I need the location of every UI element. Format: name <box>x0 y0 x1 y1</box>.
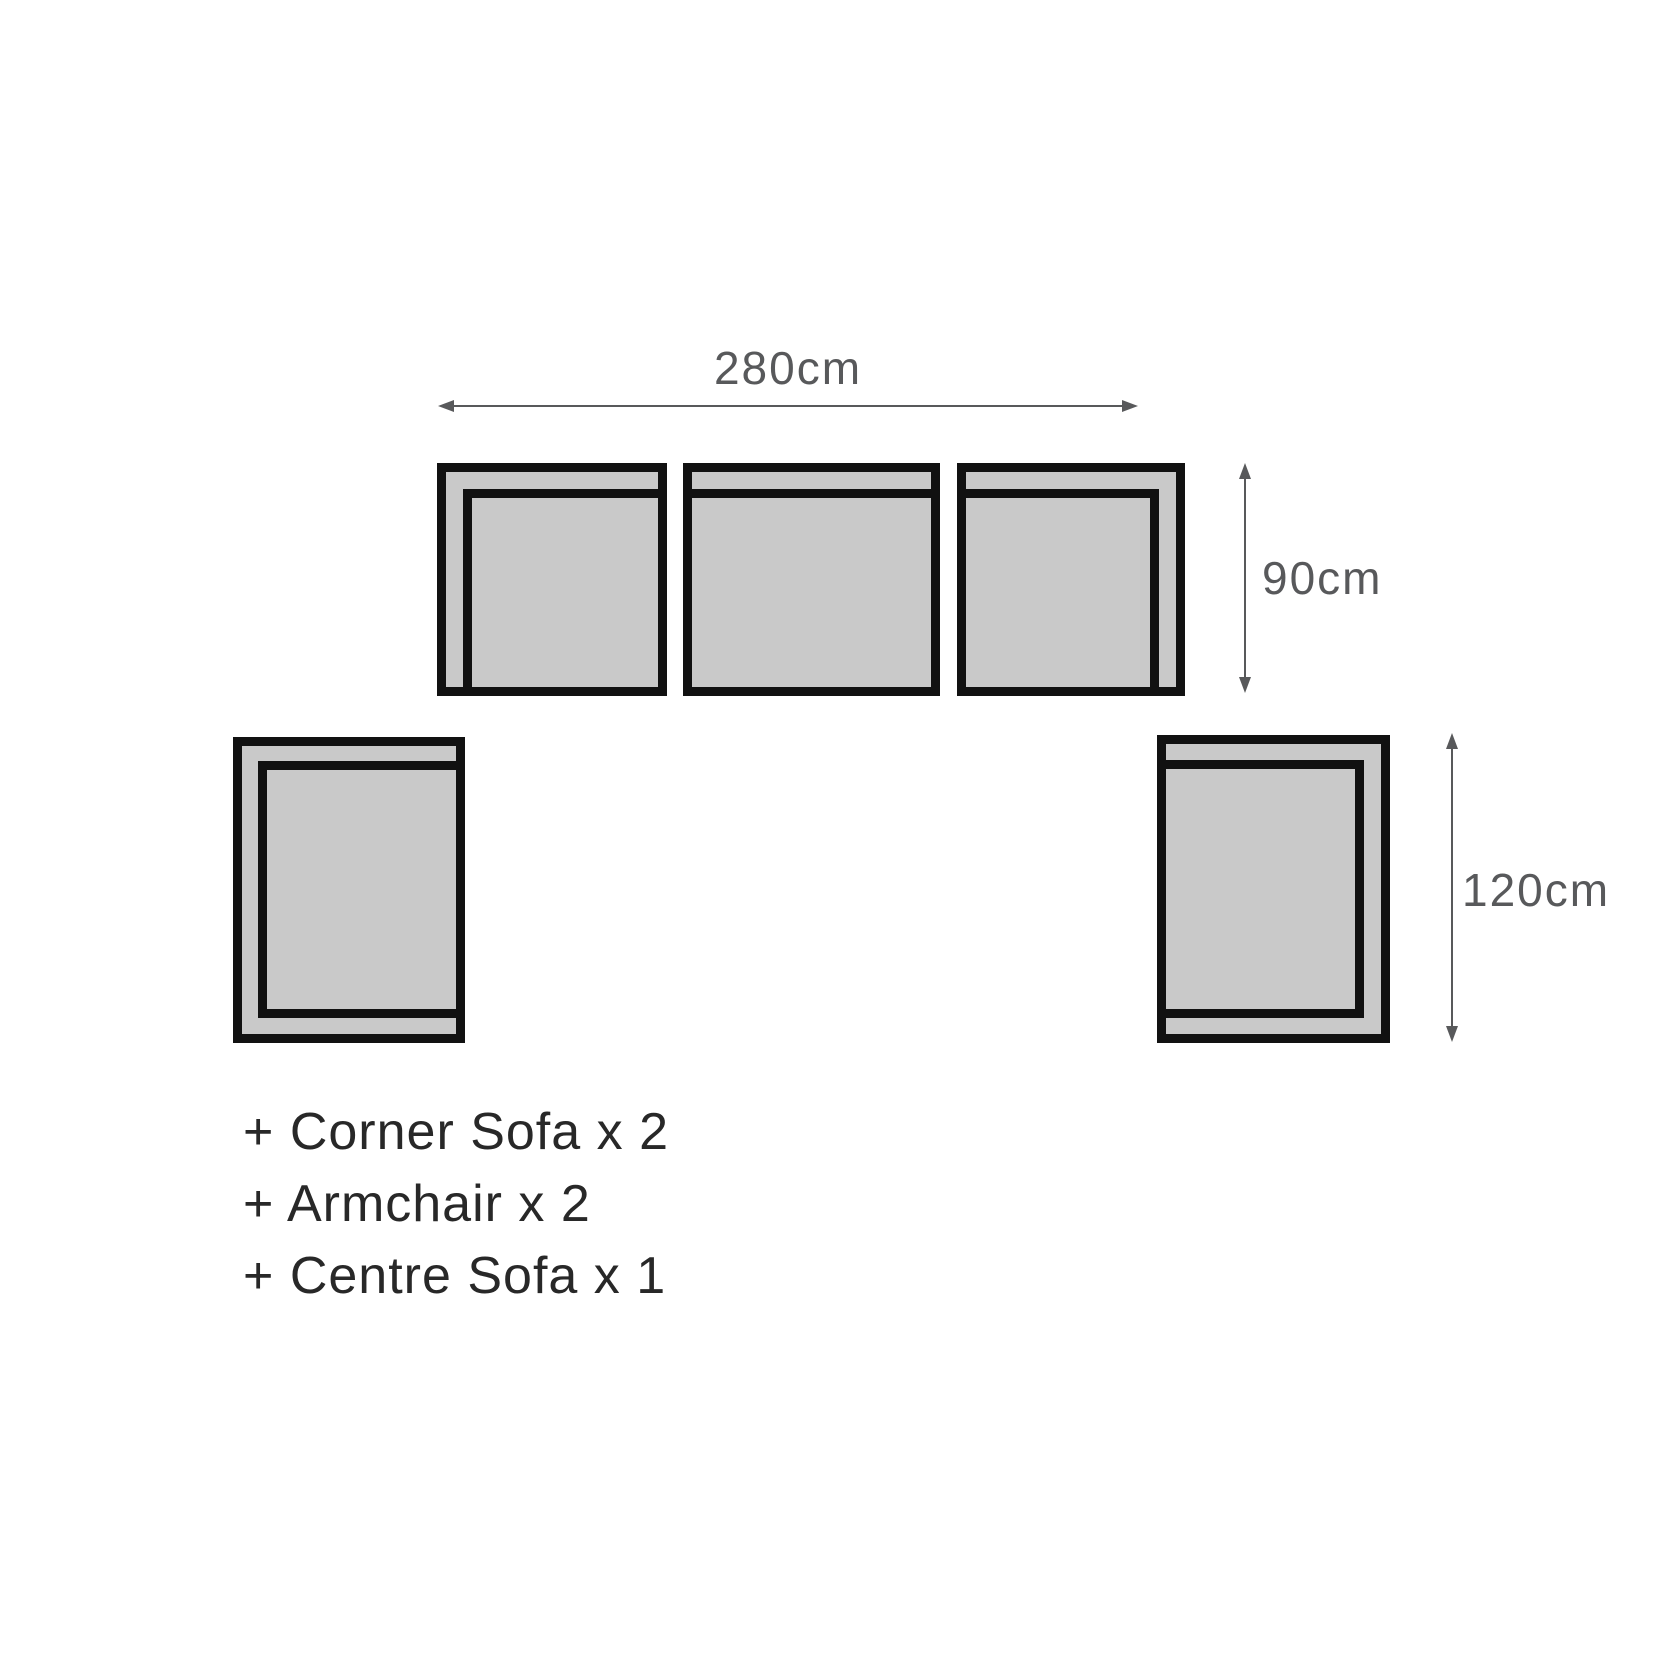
side-depth-dimension-arrow <box>1445 733 1459 1042</box>
arrow-line <box>1451 745 1453 1030</box>
centre-sofa <box>683 463 940 696</box>
arrow-down-head-icon <box>1446 1026 1458 1042</box>
armchair-right-seat <box>1166 760 1364 1018</box>
arrow-line <box>1244 475 1246 681</box>
sofa-dimension-diagram: 280cm 90cm 120cm + Corner Sofa x 2 + Arm… <box>0 0 1676 1676</box>
corner-sofa-left <box>437 463 667 696</box>
arrow-line <box>450 405 1126 407</box>
corner-sofa-right-seat <box>966 489 1159 687</box>
depth-dimension-arrow <box>1238 463 1252 693</box>
legend-item-armchair: + Armchair x 2 <box>243 1168 669 1240</box>
side-depth-dimension-label: 120cm <box>1462 863 1610 917</box>
corner-sofa-right <box>957 463 1185 696</box>
depth-dimension-label: 90cm <box>1262 551 1382 605</box>
width-dimension-arrow <box>438 399 1138 413</box>
armchair-left <box>233 737 465 1043</box>
corner-sofa-left-seat <box>463 489 658 687</box>
arrow-right-head-icon <box>1122 400 1138 412</box>
armchair-left-seat <box>258 761 456 1018</box>
legend-item-centre-sofa: + Centre Sofa x 1 <box>243 1240 669 1312</box>
arrow-down-head-icon <box>1239 677 1251 693</box>
legend-item-corner-sofa: + Corner Sofa x 2 <box>243 1096 669 1168</box>
armchair-right <box>1157 735 1390 1043</box>
width-dimension-label: 280cm <box>438 341 1138 395</box>
centre-sofa-seat <box>692 489 931 687</box>
legend: + Corner Sofa x 2 + Armchair x 2 + Centr… <box>243 1096 669 1312</box>
